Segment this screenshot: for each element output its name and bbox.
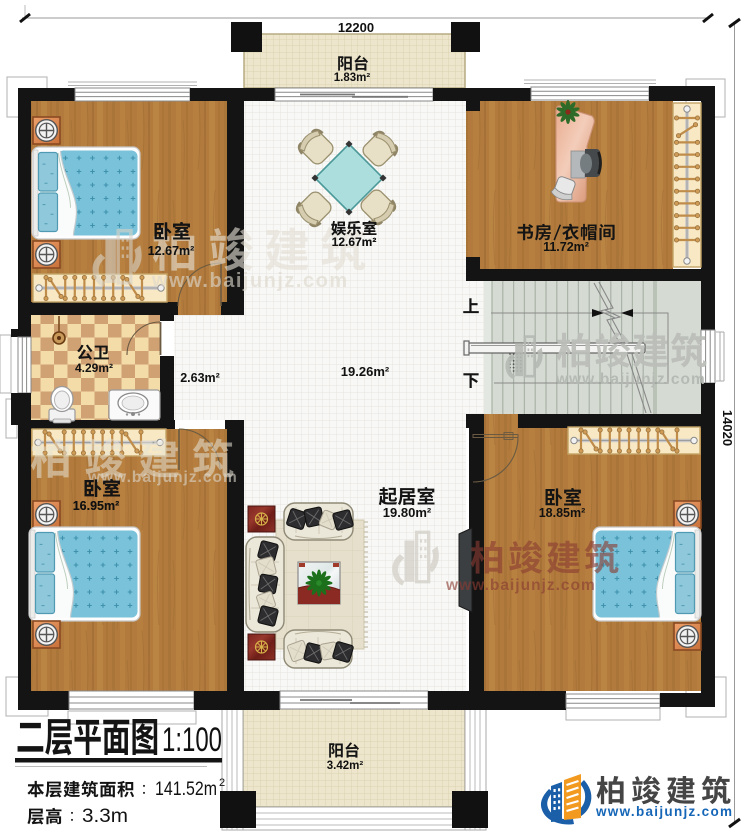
svg-text:19.80m²: 19.80m² xyxy=(383,505,432,520)
svg-text:11.72m²: 11.72m² xyxy=(543,240,589,254)
svg-text:3.3m: 3.3m xyxy=(82,806,128,827)
svg-text:www.baijunjz.com: www.baijunjz.com xyxy=(445,577,596,594)
svg-text:12.67m²: 12.67m² xyxy=(332,235,377,249)
svg-text:2.63m²: 2.63m² xyxy=(180,371,220,385)
svg-text:12.67m²: 12.67m² xyxy=(148,244,195,258)
svg-text:4.29m²: 4.29m² xyxy=(75,361,113,375)
svg-text:14020: 14020 xyxy=(720,410,735,446)
svg-text:141.52m: 141.52m xyxy=(155,779,217,800)
svg-text:www.baijunjz.com: www.baijunjz.com xyxy=(87,469,238,486)
svg-text:1:100: 1:100 xyxy=(162,721,222,759)
svg-text:18.85m²: 18.85m² xyxy=(539,506,586,520)
svg-text:www.baijunjz.com: www.baijunjz.com xyxy=(151,270,349,292)
svg-text:2: 2 xyxy=(219,777,225,789)
svg-text:1.83m²: 1.83m² xyxy=(334,72,371,84)
svg-text:16.95m²: 16.95m² xyxy=(73,499,120,513)
svg-text:12200: 12200 xyxy=(338,20,374,35)
svg-text:www.baijunjz.com: www.baijunjz.com xyxy=(555,371,706,388)
svg-text:19.26m²: 19.26m² xyxy=(341,364,390,379)
svg-text:3.42m²: 3.42m² xyxy=(327,760,364,772)
svg-text:www.baijunjz.com: www.baijunjz.com xyxy=(595,804,733,819)
